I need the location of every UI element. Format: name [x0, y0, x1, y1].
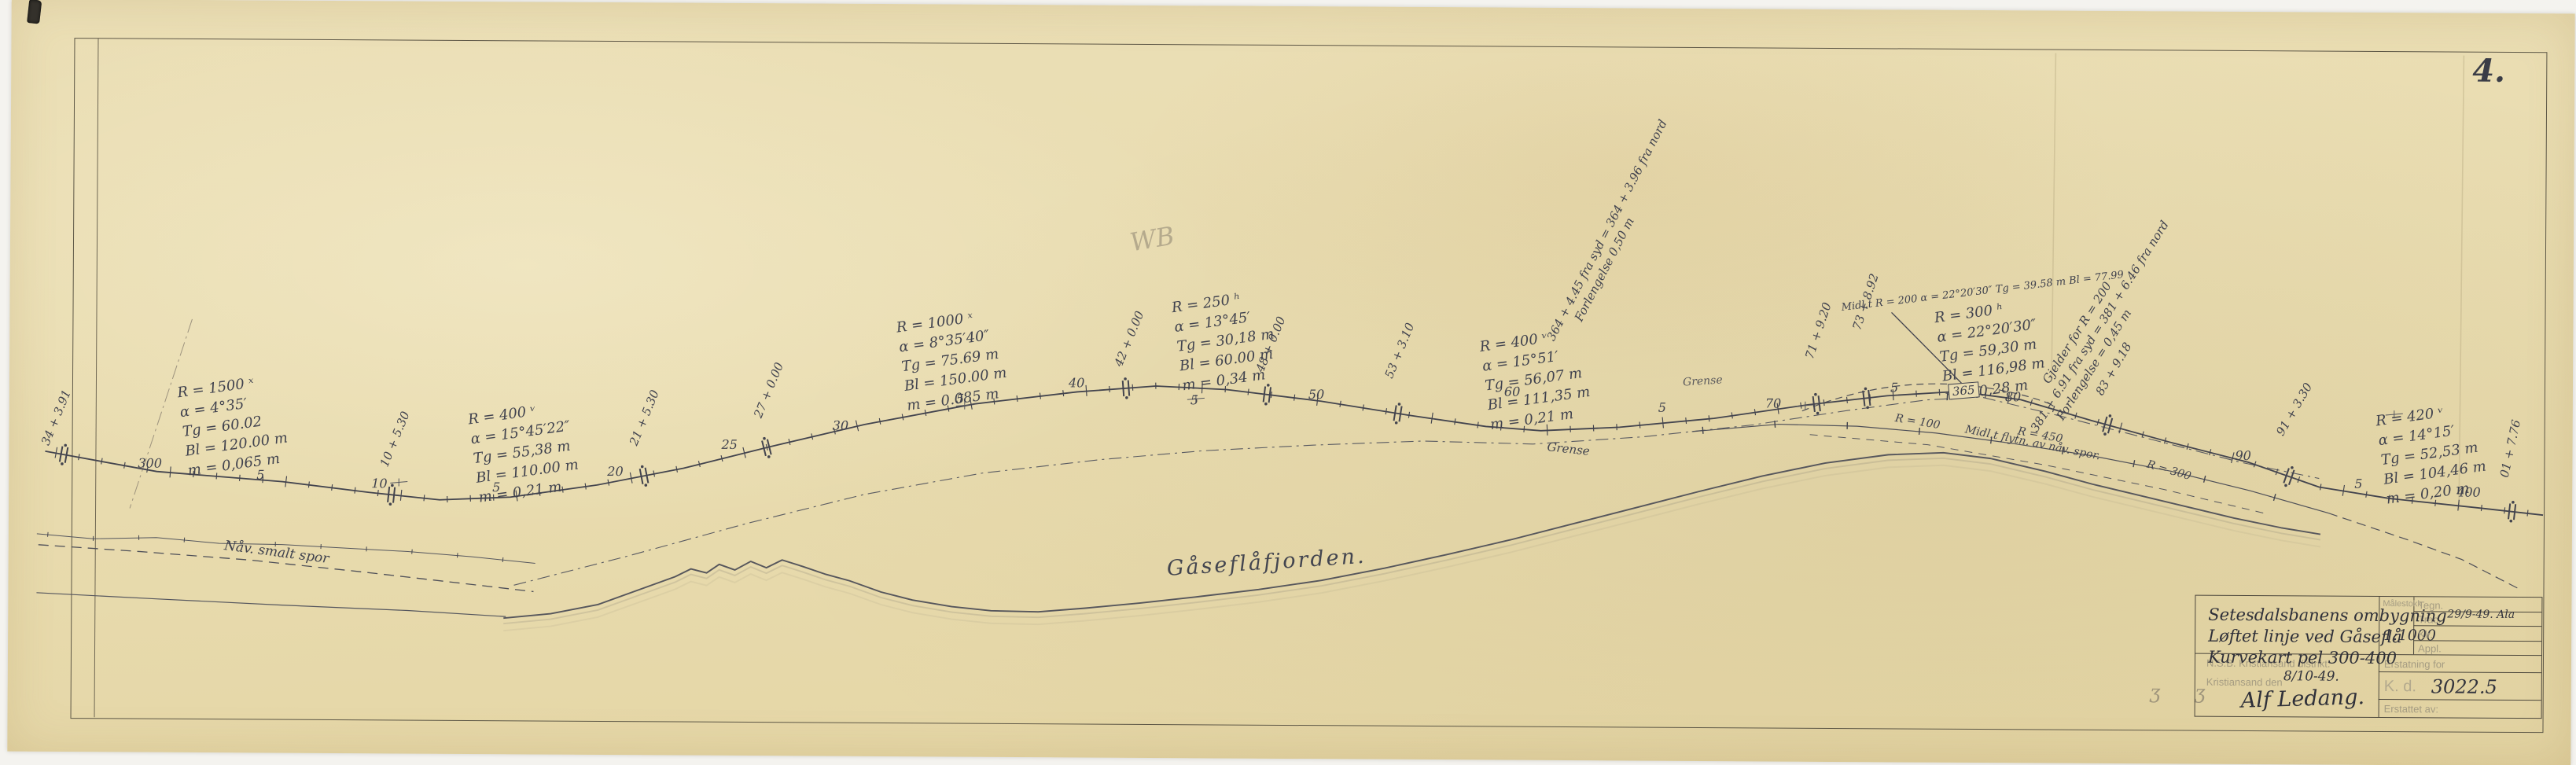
station-label: 300 [138, 456, 162, 471]
station-label: 60 [1504, 384, 1520, 399]
org-line2: Kristiansand den [2206, 676, 2283, 689]
signature: Alf Ledang. [2240, 685, 2364, 713]
erstattet-label: Erstattet av: [2384, 703, 2438, 715]
map-canvas [0, 0, 2576, 765]
bridge-number-box: 365 [1948, 381, 1979, 399]
shoreline [503, 444, 2320, 628]
station-label: 40 [1069, 375, 1084, 390]
station-label: 10 [371, 476, 387, 491]
curve-data-1: R = 1500 ˣ α = 4°35′ Tg = 60.02 Bl = 120… [176, 370, 292, 480]
grense-label-2: Grense [1683, 373, 1724, 388]
station-label: 400 [2456, 485, 2481, 500]
station-label: 5 [492, 480, 500, 495]
date-note: 29/9-49. Ala [2447, 608, 2515, 620]
station-label: 5 [1658, 400, 1666, 415]
date-handwritten: 8/10-49. [2283, 668, 2339, 684]
station-label: 5 [956, 392, 964, 406]
station-label: 90 [2235, 448, 2250, 463]
station-label: 50 [1308, 387, 1324, 402]
station-label: 5 [2354, 476, 2362, 491]
shore-shading [503, 457, 2320, 641]
fold-crease [2052, 53, 2055, 382]
shore-lower-line [36, 593, 506, 616]
scanned-drawing: 4. [0, 0, 2576, 765]
kd-label: K. d. [2384, 678, 2416, 696]
shore-shading [503, 450, 2320, 634]
curve-data-3: R = 1000 ˣα = 8°35′40″Tg = 75.69 mBl = 1… [895, 304, 1010, 415]
drawing-number: 3022.5 [2431, 675, 2497, 697]
station-label: 80 [2005, 389, 2021, 404]
station-label: 5 [1890, 380, 1898, 395]
station-label: 30 [833, 418, 848, 433]
paper-sheet: 4. [7, 0, 2574, 765]
station-label: 5 [1190, 392, 1198, 407]
station-label: 5 [256, 467, 264, 482]
old-track-right-dashed [2328, 513, 2520, 589]
station-label: 70 [1765, 395, 1781, 410]
station-label: 25 [721, 437, 737, 452]
drawing-title: Setesdalsbanens ombygning Løftet linje v… [2208, 605, 2447, 670]
curve-data-2: R = 400 ᵛα = 15°45′22″Tg = 55,38 mBl = 1… [467, 396, 583, 507]
station-label: 20 [607, 464, 623, 479]
